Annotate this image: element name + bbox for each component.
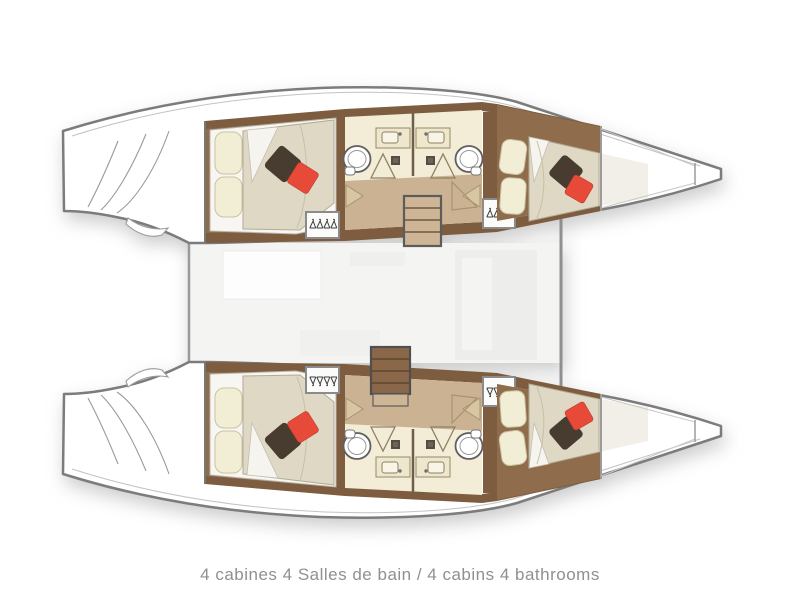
fwd-wall-band: [483, 112, 497, 200]
port-hull: [63, 87, 721, 243]
floorplan-page: 4 cabines 4 Salles de bain / 4 cabins 4 …: [0, 0, 800, 600]
catamaran-plan: [63, 87, 721, 517]
ghost-table: [223, 251, 321, 299]
aft-cabin: [205, 117, 345, 243]
pillow: [499, 177, 526, 215]
floorplan-svg: [0, 0, 800, 600]
stairs-icon-port: [404, 196, 441, 246]
pillow: [215, 177, 242, 217]
plan-caption: 4 cabines 4 Salles de bain / 4 cabins 4 …: [0, 565, 800, 585]
ghost-counter: [462, 258, 492, 350]
wardrobe: [306, 212, 339, 238]
ghost-seat: [300, 330, 380, 356]
pillow: [498, 138, 527, 175]
stairs-icon-starboard: [371, 347, 410, 406]
pillow: [215, 132, 242, 174]
ghost-furniture: [350, 252, 405, 266]
sink-icon: [382, 132, 398, 143]
